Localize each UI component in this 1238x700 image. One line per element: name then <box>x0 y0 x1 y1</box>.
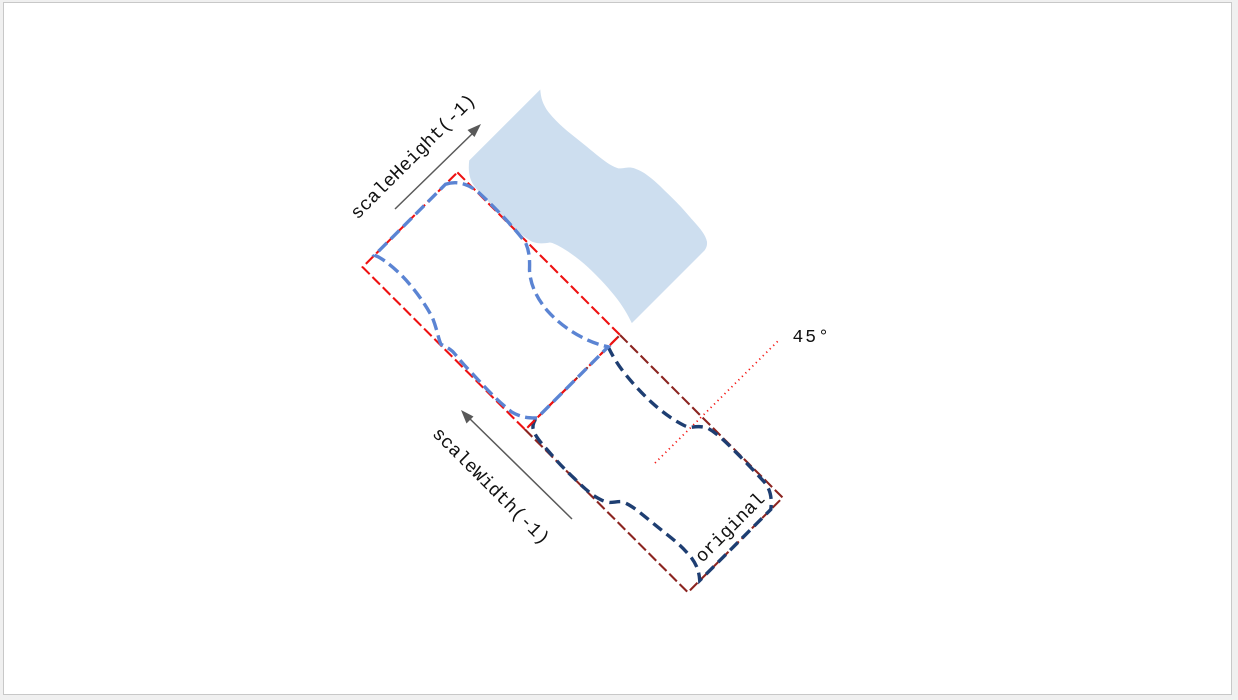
svg-text:original: original <box>691 488 770 567</box>
svg-text:scaleHeight(-1): scaleHeight(-1) <box>346 90 481 225</box>
svg-text:45°: 45° <box>793 328 831 348</box>
svg-text:scaleWidth(-1): scaleWidth(-1) <box>427 423 554 550</box>
